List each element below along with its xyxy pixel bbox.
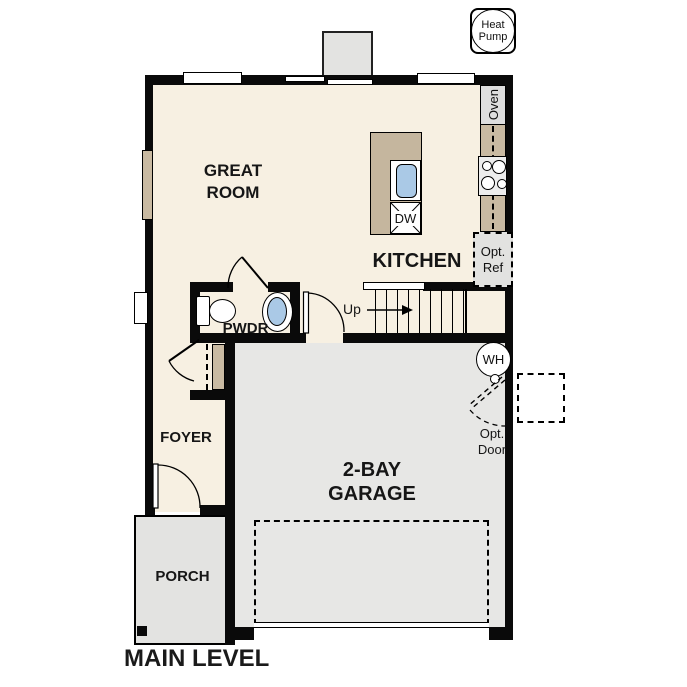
stairs-up-label: Up — [340, 301, 364, 317]
dishwasher-label: DW — [393, 211, 418, 226]
dishwasher: DW — [390, 202, 421, 234]
burner-large-bl — [481, 176, 495, 190]
window-top-3 — [327, 79, 373, 85]
wall-garage-north-right — [343, 333, 513, 343]
garage-door — [254, 622, 489, 628]
sink-basin-icon — [396, 164, 417, 198]
garage-parking-dashed — [254, 520, 489, 625]
wall-pwdr-top-a — [190, 282, 233, 292]
heat-pump-circle: Heat Pump — [471, 9, 515, 53]
wall-garage-south-a — [225, 627, 254, 640]
left-wall-niche — [142, 150, 153, 220]
closet-shelf — [212, 344, 225, 390]
toilet-tank-icon — [196, 296, 210, 326]
kitchen-label: KITCHEN — [358, 250, 476, 273]
burner-large-tr — [492, 160, 506, 174]
wall-garage-west — [225, 333, 235, 645]
window-top-2 — [285, 76, 325, 82]
floor-plan: Oven Opt. Ref DW WH — [0, 0, 687, 687]
water-heater-label: WH — [483, 352, 505, 367]
wall-garage-south-b — [489, 627, 513, 640]
plan-title: MAIN LEVEL — [124, 645, 269, 673]
porch-label: PORCH — [145, 568, 220, 585]
water-heater-valve-icon — [490, 374, 500, 384]
burner-small-br — [497, 179, 507, 189]
oven: Oven — [480, 85, 506, 125]
pwdr-label: PWDR — [218, 320, 273, 337]
wall-front-b — [200, 505, 235, 515]
wall-front-a — [145, 505, 155, 515]
water-heater-icon: WH — [476, 342, 511, 377]
optional-stoop — [517, 373, 565, 423]
kitchen-island: DW — [370, 132, 422, 235]
window-left — [134, 292, 148, 324]
opt-door-label: Opt. Door — [466, 426, 518, 458]
staircase — [365, 289, 467, 333]
foyer-label: FOYER — [155, 429, 217, 446]
window-top-4 — [417, 73, 475, 84]
garage-label: 2-BAY GARAGE — [312, 458, 432, 506]
porch-post — [137, 626, 147, 636]
wall-closet-bottom — [190, 390, 235, 400]
oven-label: Oven — [486, 89, 501, 120]
sink-unit — [390, 160, 421, 201]
fireplace-bumpout — [322, 31, 373, 81]
opt-ref-line2: Ref — [483, 260, 503, 276]
heat-pump-badge: Heat Pump — [470, 8, 516, 54]
stair-railing — [363, 282, 425, 290]
burner-small-tl — [482, 161, 492, 171]
great-room-label: GREAT ROOM — [183, 160, 283, 204]
opt-ref-line1: Opt. — [481, 244, 506, 260]
optional-refrigerator: Opt. Ref — [473, 232, 513, 287]
closet-rod-dashed-line — [206, 344, 208, 390]
window-top-1 — [183, 72, 242, 84]
cooktop-icon — [478, 156, 507, 196]
